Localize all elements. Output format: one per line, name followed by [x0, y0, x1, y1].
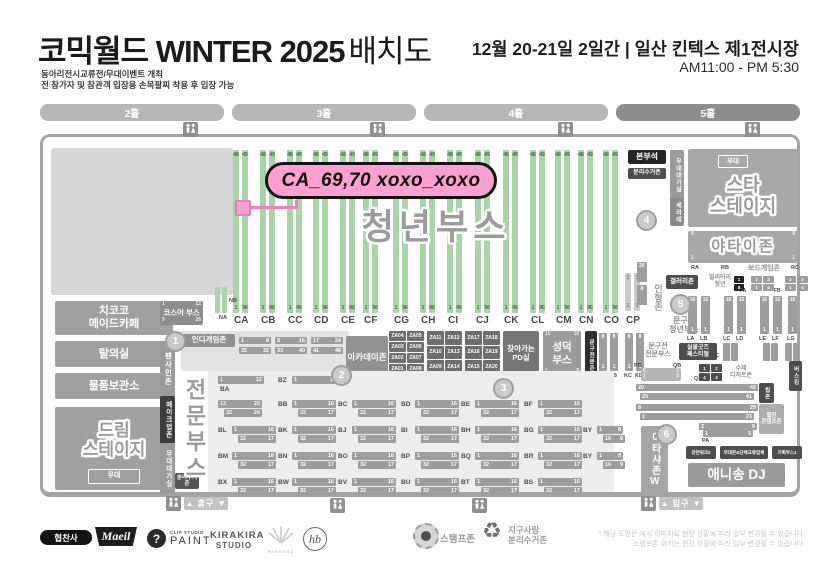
booth-bar: 116: [232, 426, 276, 434]
stage-wait-block: 무대대기실: [160, 443, 175, 494]
seongdeok-corner-num: 16: [545, 332, 551, 338]
yatai-col-label: RB: [721, 265, 735, 271]
strip-bottom-num: 1: [420, 305, 426, 311]
indie-bar: 1724: [311, 337, 343, 344]
strip-top-num: 49: [484, 152, 490, 158]
q-label: QB: [673, 363, 687, 369]
l-column-bar: 161: [724, 296, 733, 334]
strip-top-num: 48: [603, 152, 609, 158]
event-mini-block: 강연워크2: [686, 446, 716, 459]
subtitle-line1: 동아리전시교류전/무대이벤트 개최: [41, 69, 163, 80]
restroom-icon: [641, 496, 656, 511]
f-grid-label: FA: [740, 288, 750, 294]
kirakira-logo-line1: KIRAKIRA: [210, 530, 258, 541]
youth-column-label: CK: [504, 315, 526, 326]
booth-row-label: BQ: [461, 453, 475, 460]
za-cell: ZA16: [465, 346, 482, 360]
strip-top-num: 49: [242, 152, 248, 158]
q-bar: [793, 343, 800, 361]
strip-bottom-num: 1: [340, 305, 346, 311]
strip-bottom-num: 1: [603, 305, 609, 311]
strip-top-num: 48: [420, 152, 426, 158]
q-bar: [771, 343, 778, 361]
dessert-label: 수제 디저트존: [726, 366, 756, 380]
youth-strip: [555, 150, 561, 313]
youth-column-label: CF: [364, 315, 386, 326]
strip-bottom-num: 96: [512, 305, 518, 311]
hall-pill-5: 5홀: [616, 104, 800, 121]
k-column-bar: 81: [610, 333, 618, 371]
p-bar: 123: [640, 413, 754, 420]
youth-column-label: CC: [288, 315, 310, 326]
strip-bottom-num: 96: [296, 305, 302, 311]
mini-strip: [222, 287, 227, 313]
strip-bottom-num: 1: [625, 303, 631, 309]
tip-zone-block: 팁존: [759, 383, 774, 403]
date-venue: 12월 20-21일 2일간 | 일산 킨텍스 제1전시장: [399, 36, 799, 61]
earth-recycle-label: 지구사랑 분리수거존: [508, 525, 547, 545]
booth-row-label: BM: [218, 453, 232, 460]
booth-bar: 116: [538, 426, 582, 434]
booth-bar: 18: [597, 426, 623, 434]
kirakira-logo-line2: STUDIO: [210, 541, 258, 550]
numbered-marker: 4: [636, 210, 657, 231]
za-cell: ZA03: [389, 342, 406, 352]
strip-top-num: 49: [587, 152, 593, 158]
strip-top-num: 1: [625, 275, 631, 281]
pancosa-logo: PANCOSA: [262, 524, 300, 554]
strip-top-num: 48: [340, 152, 346, 158]
za-cell: ZA18: [483, 331, 500, 345]
youth-strip: [564, 150, 570, 313]
l-column-bar: 161: [737, 296, 746, 334]
numbered-marker: 5: [670, 294, 691, 315]
strip-top-num: 48: [260, 152, 266, 158]
stamp-zone-label: 스탬프존: [440, 531, 475, 545]
strip-top-num: 48: [555, 152, 561, 158]
p-bar: 26: [699, 423, 757, 430]
booth-row-label: BU: [401, 479, 415, 486]
indie-game-label: 인디게임존: [183, 334, 235, 347]
subtitle-line2: 전 참가자 및 참관객 입장용 손목팔찌 착용 후 입장 가능: [41, 80, 234, 91]
strip-bottom-num: 1: [475, 305, 481, 311]
za-cell: ZA17: [465, 331, 482, 345]
booth-row-label: BF: [524, 401, 538, 408]
youth-strip: [539, 150, 545, 313]
booth-bar: 116: [352, 400, 396, 408]
youth-column-label: CA: [234, 315, 256, 326]
star-stage-label: 스타 스테이지: [688, 175, 798, 217]
yatai-col-label: RA: [691, 265, 705, 271]
callout-bubble: CA_69,70 xoxo_xoxo: [265, 162, 497, 199]
doll-bar: 8: [637, 285, 647, 305]
yatai-label: 야타이존: [688, 238, 798, 255]
youth-booth-title: 청년부스: [361, 199, 511, 241]
f-grid-cell: 2: [785, 276, 796, 283]
booth-bar: 116: [415, 478, 459, 486]
booth-bar: 3217: [481, 409, 519, 417]
cosplay-corner-num: 22: [195, 302, 201, 308]
restroom-icon: [558, 122, 573, 137]
mini-strip-label: NB: [229, 298, 241, 304]
f-grid-cell: 3: [763, 276, 774, 283]
booth-row-label: BI: [401, 427, 415, 434]
booth-bar: 3217: [481, 487, 519, 495]
restroom-icon: [745, 122, 760, 137]
youth-strip: [530, 150, 536, 313]
strip-top-num: 49: [372, 152, 378, 158]
booth-bar: 3217: [298, 461, 336, 469]
q-grid-cell: 3: [711, 373, 722, 381]
yatai-corner-num: 1: [792, 256, 795, 262]
strip-bottom-num: 96: [587, 305, 593, 311]
l-column-label: LA: [687, 336, 699, 342]
booth-bar: 3217: [358, 461, 396, 469]
restroom-icon: [330, 498, 345, 513]
f-grid-cell: 4: [763, 284, 774, 291]
booth-bar: 3217: [544, 409, 582, 417]
strip-bottom-num: 96: [322, 305, 328, 311]
strip-bottom-num: 1: [503, 305, 509, 311]
l-column-bar: 161: [773, 296, 782, 334]
hall-pill-3: 3홀: [232, 104, 416, 121]
anisong-dj-block: 애니송 DJ: [688, 463, 785, 487]
booth-bar: 116: [352, 478, 396, 486]
busking-block: 버스킹: [789, 361, 802, 391]
dream-stage-label: 드림 스테이지: [55, 421, 173, 459]
booth-bar: 3217: [544, 461, 582, 469]
yatai-block: 야타이존8811: [688, 231, 798, 263]
booth-bar: 3217: [421, 487, 459, 495]
strip-bottom-num: 96: [402, 305, 408, 311]
booth-bar: 116: [415, 452, 459, 460]
booth-bar: 3217: [358, 435, 396, 443]
strip-bottom-num: 96: [242, 305, 248, 311]
yatai-corner-num: 8: [691, 232, 694, 238]
webzine-block: 웹진 콘텐츠존: [759, 404, 784, 434]
booth-bar: 3217: [238, 487, 276, 495]
youth-column-label: CG: [394, 315, 416, 326]
stage-box-small: 무대: [718, 155, 748, 168]
booth-row-label: BV: [338, 479, 352, 486]
strip-bottom-num: 96: [564, 305, 570, 311]
booth-row-label: BK: [278, 427, 292, 434]
booth-bar: 3217: [298, 487, 336, 495]
strip-bottom-num: 1: [287, 305, 293, 311]
youth-strip: [578, 150, 584, 313]
booth-bar: 3217: [481, 461, 519, 469]
youth-strip: [233, 150, 239, 313]
za-cell: ZA05: [407, 331, 424, 341]
booth-bar: 116: [292, 478, 336, 486]
strip-top-num: 48: [287, 152, 293, 158]
restroom-icon: [472, 498, 487, 513]
recycle-icon: ♻: [482, 518, 502, 544]
indie-bar: 4148: [311, 347, 343, 354]
floor-plan: 4849196CA4849196CB4849196CC4849196CD4849…: [40, 134, 800, 497]
p-label: PA: [702, 438, 716, 444]
strip-bottom-num: 1: [447, 305, 453, 311]
strip-top-num: 49: [402, 152, 408, 158]
f-grid-cell: 4: [797, 284, 808, 291]
strip-top-num: 48: [233, 152, 239, 158]
za-cell: ZA10: [427, 346, 444, 360]
exit-gate-label: ▲ 출구 ▼: [184, 497, 228, 510]
footnote-line2: 스탬프존 위치는 현장 상황에 따라 일부 변경될 수 있습니다.: [545, 540, 805, 550]
board-game-label: 보드게임존: [741, 265, 787, 273]
q-grid-cell: 1: [699, 364, 710, 372]
l-column-label: LD: [736, 336, 748, 342]
booth-row-label: BZ: [278, 377, 292, 384]
f-grid-label: FB: [774, 288, 784, 294]
strip-bottom-num: 96: [349, 305, 355, 311]
yatai-col-label: RC: [791, 265, 805, 271]
strip-bottom-num: 96: [612, 305, 618, 311]
hall-pill-2: 2홀: [40, 104, 224, 121]
youth-column-label: CB: [261, 315, 283, 326]
strip-bottom-num: 1: [393, 305, 399, 311]
strip-top-num: 48: [503, 152, 509, 158]
stationery-pro-label: 문구전 전문부스: [639, 343, 677, 359]
booth-bar: 3217: [238, 461, 276, 469]
numbered-marker: 2: [331, 365, 352, 386]
strip-top-num: 49: [512, 152, 518, 158]
za-cell: ZA02: [389, 353, 406, 363]
strip-top-num: 48: [313, 152, 319, 158]
youth-strip: [612, 150, 618, 313]
serate-block: 세라테: [670, 198, 684, 226]
za-cell: ZA12: [445, 331, 462, 345]
booth-row-label: BY: [583, 453, 597, 460]
booth-bar: 116: [538, 478, 582, 486]
booth-row-label: BL: [218, 427, 232, 434]
mini-strip-label: NA: [219, 315, 231, 321]
military-cell: 1: [734, 276, 744, 283]
numbered-marker: 6: [656, 424, 677, 445]
q-bar: [763, 343, 770, 361]
maeil-logo: Maeil: [95, 527, 137, 546]
event-mini-block: 무대존&단체교류업체: [720, 446, 768, 459]
cosplay-corner-num: 1: [162, 302, 165, 308]
booth-row-label: BY: [583, 427, 597, 434]
booth-bar: 3217: [358, 487, 396, 495]
opening-hours: AM11:00 - PM 5:30: [499, 59, 799, 75]
strip-top-num: 49: [539, 152, 545, 158]
p-bar: 15: [703, 430, 753, 437]
comicworld-layout-poster: 코믹월드 WINTER 2025배치도 동아리전시교류전/무대이벤트 개최 전 …: [0, 0, 835, 576]
strip-bottom-num: 1: [313, 305, 319, 311]
strip-top-num: 48: [393, 152, 399, 158]
strip-top-num: 49: [612, 152, 618, 158]
maid-cafe-block: 치코코 메이드카페: [55, 301, 173, 335]
strip-bottom-num: 96: [372, 305, 378, 311]
q-bar: [785, 343, 792, 361]
entrance-gate-label: ▲ 입구 ▼: [659, 497, 703, 510]
star-stage-block: 무대스타 스테이지: [688, 149, 798, 227]
strip-top-num: 49: [429, 152, 435, 158]
hq-block: 본부석: [628, 150, 666, 164]
strip-top-num: 48: [447, 152, 453, 158]
f-grid-cell: 1: [751, 284, 762, 291]
footnote-line1: * 해당 도면은 예시 이미지로 현장 상황에 따라 일부 변경될 수 있습니다…: [545, 530, 805, 540]
booth-bar: 3217: [238, 435, 276, 443]
booth-bar: 3217: [421, 461, 459, 469]
gallery-block: 갤러리존: [666, 275, 698, 289]
strip-top-num: 49: [564, 152, 570, 158]
booth-row-label: BO: [338, 453, 352, 460]
stationery-youth-label: 문구전 청년부스: [662, 317, 706, 333]
youth-column-label: CM: [556, 315, 578, 326]
booth-bar: 116: [232, 478, 276, 486]
strip-bottom-num: 1: [555, 305, 561, 311]
booth-bar: 116: [292, 452, 336, 460]
restroom-icon: [183, 122, 198, 137]
pb-corner-num: 8: [676, 374, 679, 380]
p-bar: 2541: [640, 393, 754, 400]
p-bar: 2042: [636, 384, 758, 391]
l-column-label: LB: [700, 336, 712, 342]
strip-bottom-num: 96: [539, 305, 545, 311]
makeup-zone-block: 메이크업존: [160, 396, 175, 444]
indie-bar: 916: [275, 337, 307, 344]
booth-row-label: BA: [220, 386, 240, 393]
q-grid-cell: 4: [699, 373, 710, 381]
numbered-marker: 1: [165, 331, 186, 352]
changing-room-block: 탈의실: [55, 341, 173, 367]
page-title: 코믹월드 WINTER 2025배치도: [38, 26, 431, 71]
pro-booth-title: 전문부스: [186, 367, 210, 492]
l-column-label: LC: [723, 336, 735, 342]
booth-row-label: BT: [461, 479, 475, 486]
pd-room-block: 찾아가는 PD실: [503, 331, 539, 376]
callout-marker: [235, 200, 251, 216]
strip-top-num: 49: [269, 152, 275, 158]
booth-bar: 18: [597, 452, 623, 460]
youth-column-label: CH: [421, 315, 443, 326]
indie-bar: 18: [239, 337, 271, 344]
youth-column-label: CN: [579, 315, 601, 326]
yatai-corner-num: 1: [691, 256, 694, 262]
youth-strip: [603, 150, 609, 313]
booth-row-label: BP: [401, 453, 415, 460]
za-cell: ZA07: [407, 353, 424, 363]
restroom-icon: [166, 496, 181, 511]
indie-bar: 3340: [275, 347, 307, 354]
l-column-bar: 161: [788, 296, 797, 334]
booth-bar: 169: [603, 435, 625, 443]
strip-top-num: 49: [296, 152, 302, 158]
q-bar: [731, 343, 738, 361]
seongdeok-corner-num: 10: [573, 332, 579, 338]
p-bar: 829: [636, 404, 758, 411]
booth-row-label: BR: [524, 453, 538, 460]
booth-bar: 1323: [218, 400, 262, 408]
booth-row-label: BN: [278, 453, 292, 460]
strip-bottom-num: 96: [456, 305, 462, 311]
strip-top-num: 49: [456, 152, 462, 158]
booth-row-label: BE: [461, 401, 475, 408]
strip-top-num: 48: [530, 152, 536, 158]
q-label: QC: [711, 353, 725, 359]
strip-bottom-num: 96: [484, 305, 490, 311]
strip-bottom-num: 1: [260, 305, 266, 311]
page-title-main: 코믹월드 WINTER 2025: [38, 34, 345, 69]
military-label: 밀리터리 청년: [706, 275, 734, 291]
booth-row-label: BW: [278, 479, 292, 486]
youth-strip: [242, 150, 248, 313]
booth-bar: 116: [415, 400, 459, 408]
booth-bar: 116: [352, 452, 396, 460]
booth-bar: 116: [292, 400, 336, 408]
strip-bottom-num: 96: [429, 305, 435, 311]
booth-row-label: BH: [461, 427, 475, 434]
empty-hall-area: [51, 148, 233, 295]
strip-bottom-num: 1: [363, 305, 369, 311]
f-grid-cell: 3: [797, 276, 808, 283]
callout-line-h: [248, 206, 298, 209]
strip-bottom-num: 1: [578, 305, 584, 311]
booth-bar: 3217: [358, 409, 396, 417]
booth-bar: 116: [292, 426, 336, 434]
dream-stage-block: 드림 스테이지무대: [55, 407, 173, 490]
booth-bar: 3217: [481, 435, 519, 443]
youth-column-label: CL: [531, 315, 553, 326]
za-cell: ZA13: [445, 346, 462, 360]
stamp-icon: [413, 523, 439, 549]
mini-strip: [215, 287, 220, 313]
booth-bar: 116: [538, 452, 582, 460]
fan-icon: [268, 524, 294, 544]
numbered-marker: 3: [493, 378, 514, 399]
cosplay-corner-num: 9: [162, 318, 165, 324]
youth-strip: [587, 150, 593, 313]
strip-bottom-num: 96: [269, 305, 275, 311]
booth-row-label: BC: [338, 401, 352, 408]
sponsor-badge: 협찬사: [40, 530, 92, 545]
strip-top-num: 48: [578, 152, 584, 158]
booth-bar: 3224: [224, 409, 262, 417]
youth-column-label: CP: [626, 315, 648, 326]
yatai-corner-num: 8: [792, 232, 795, 238]
booth-bar: 112: [218, 376, 264, 384]
za-cell: ZA19: [483, 346, 500, 360]
cosplay-booth-block: 코스어 부스122926: [160, 301, 203, 325]
youth-column-label: CO: [604, 315, 626, 326]
booth-row-label: BS: [524, 479, 538, 486]
za-cell: ZA11: [427, 331, 444, 345]
doll-bar: 26: [637, 262, 647, 282]
za-cell: ZA06: [407, 342, 424, 352]
l-column-bar: 161: [701, 296, 710, 334]
booth-row-label: BD: [401, 401, 415, 408]
cosplay-corner-num: 26: [195, 318, 201, 324]
l-column-bar: 161: [760, 296, 769, 334]
booth-bar: 116: [475, 452, 519, 460]
strip-top-num: 49: [322, 152, 328, 158]
booth-bar: 3217: [421, 409, 459, 417]
booth-row-label: BB: [278, 401, 292, 408]
booth-row-label: BJ: [338, 427, 352, 434]
booth-row-label: BG: [524, 427, 538, 434]
booth-bar: 116: [475, 478, 519, 486]
k-column-bar: 81: [599, 333, 607, 371]
monogram-logo: hb: [303, 527, 327, 551]
clip-paint-text: PAINT: [170, 535, 212, 547]
f-grid-cell: 2: [751, 276, 762, 283]
youth-column-label: CJ: [476, 315, 498, 326]
booth-bar: 169: [603, 461, 625, 469]
booth-row-label: BX: [218, 479, 232, 486]
